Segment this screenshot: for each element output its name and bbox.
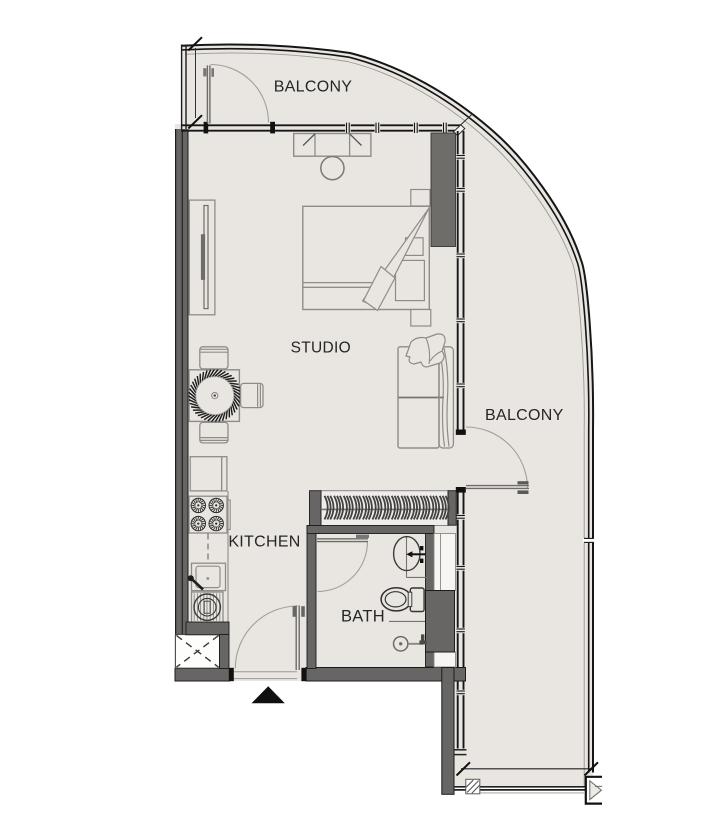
- svg-text:KITCHEN: KITCHEN: [228, 533, 300, 550]
- svg-text:STUDIO: STUDIO: [291, 339, 351, 356]
- svg-text:BATH: BATH: [341, 608, 385, 626]
- svg-text:BALCONY: BALCONY: [274, 79, 353, 96]
- svg-text:BALCONY: BALCONY: [485, 407, 564, 424]
